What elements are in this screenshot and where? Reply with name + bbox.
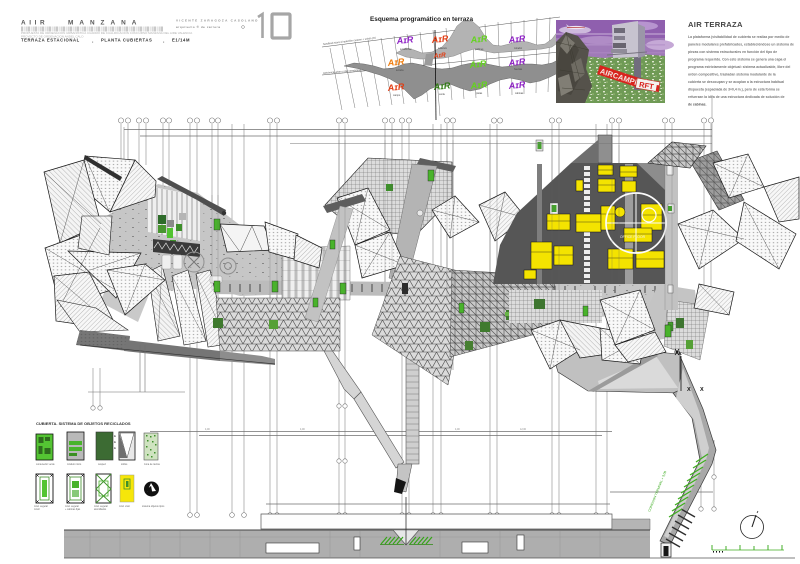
- svg-text:E: E: [114, 446, 116, 450]
- svg-text:TERRAZA ESTACIONAL: TERRAZA ESTACIONAL: [21, 38, 80, 43]
- svg-text:E: E: [114, 440, 116, 444]
- svg-text:orden compositivo, trasladan s: orden compositivo, trasladan sistema mod…: [688, 73, 776, 77]
- svg-text:cubierta se desocupan y se aco: cubierta se desocupan y se acoplan a la …: [688, 80, 784, 84]
- svg-text:terraza: terraza: [396, 69, 404, 72]
- svg-text:.: .: [92, 39, 94, 45]
- svg-text:programa estrictamente objetua: programa estrictamente objetual: sistema…: [688, 65, 790, 69]
- svg-text:X: X: [687, 387, 691, 393]
- svg-text:AɪR: AɪR: [468, 58, 487, 70]
- svg-text:MANZANA: MANZANA: [68, 20, 142, 27]
- svg-text:piezas con sistema estructural: piezas con sistema estructurales en func…: [688, 50, 777, 54]
- svg-text:AɪR: AɪR: [430, 33, 449, 45]
- svg-text:paneles modulares prefabricado: paneles modulares prefabricados, estable…: [688, 43, 794, 47]
- svg-text:cabinas: cabinas: [515, 92, 524, 95]
- svg-text:pistas: pistas: [476, 92, 483, 95]
- svg-text:dispuesta (espaciada de 3×0,4: dispuesta (espaciada de 3×0,4 m.), pero …: [688, 88, 780, 92]
- svg-text:4,00: 4,00: [300, 428, 305, 431]
- svg-text:AɪR: AɪR: [507, 33, 526, 45]
- svg-text:AɪR: AɪR: [386, 56, 405, 68]
- svg-text:4,00: 4,00: [205, 428, 210, 431]
- svg-text:atornillados: atornillados: [94, 508, 107, 511]
- svg-text:La plataforma (visitabilidad d: La plataforma (visitabilidad de cubierta…: [688, 35, 789, 39]
- svg-text:campo: campo: [393, 94, 401, 97]
- svg-text:E1/14M: E1/14M: [172, 38, 190, 43]
- svg-text:AɪR: AɪR: [507, 56, 526, 68]
- svg-text:mód. visor: mód. visor: [119, 505, 130, 508]
- svg-text:huertas: huertas: [514, 68, 523, 71]
- svg-text:AɪR: AɪR: [386, 81, 405, 93]
- svg-text:de cabinas.: de cabinas.: [688, 103, 707, 107]
- svg-text:AɪR: AɪR: [469, 33, 488, 45]
- svg-text:+ cabinas fijas: + cabinas fijas: [65, 508, 81, 511]
- svg-text:AɪR: AɪR: [395, 34, 414, 46]
- svg-text:sistema objetos tipos: sistema objetos tipos: [142, 505, 165, 508]
- svg-text:12,00: 12,00: [520, 428, 527, 431]
- svg-text:mirador: mirador: [514, 47, 522, 50]
- svg-text:Esquema programático en terra: Esquema programático en terraza: [370, 16, 473, 23]
- svg-text:zona de tierras: zona de tierras: [144, 463, 161, 466]
- svg-text:PLANTA CUBIERTAS: PLANTA CUBIERTAS: [101, 38, 152, 43]
- svg-text:contenedor verde: contenedor verde: [36, 463, 55, 466]
- svg-text:terraza bar: terraza bar: [400, 48, 412, 51]
- svg-text:E: E: [114, 434, 116, 438]
- svg-text:4,00: 4,00: [455, 428, 460, 431]
- svg-text:CUBIERTA. SISTEMA DE OBJETOS R: CUBIERTA. SISTEMA DE OBJETOS RECICLADOS: [36, 421, 131, 426]
- svg-text:AɪR: AɪR: [507, 79, 526, 91]
- svg-text:verde: verde: [439, 93, 446, 96]
- svg-text:OFFICE FLOOR: OFFICE FLOOR: [620, 235, 646, 239]
- svg-text:AɪR: AɪR: [432, 52, 446, 60]
- svg-text:AɪR: AɪR: [469, 79, 488, 91]
- svg-text:móvil: móvil: [34, 508, 40, 511]
- svg-text:jardines: jardines: [474, 48, 484, 51]
- svg-text:refuerzan la idea de una estru: refuerzan la idea de una estructura dedi…: [688, 95, 785, 99]
- svg-text:VICENTE ZARAGOZA CASOLANO: VICENTE ZARAGOZA CASOLANO: [176, 19, 259, 23]
- svg-text:X: X: [700, 387, 704, 393]
- svg-text:.: .: [163, 39, 165, 45]
- svg-text:arquitecto ® de carrera: arquitecto ® de carrera: [176, 25, 221, 29]
- svg-text:AIIR: AIIR: [21, 20, 48, 27]
- svg-text:solarium: solarium: [438, 47, 447, 50]
- svg-text:AIR TERRAZA: AIR TERRAZA: [688, 20, 743, 29]
- svg-text:toldos: toldos: [121, 463, 128, 466]
- svg-text:césped: césped: [98, 463, 106, 466]
- svg-text:programa requerido. Con este s: programa requerido. Con este sistema se …: [688, 58, 786, 62]
- svg-text:AɪR: AɪR: [432, 80, 451, 92]
- svg-text:módulo mixto: módulo mixto: [67, 463, 82, 466]
